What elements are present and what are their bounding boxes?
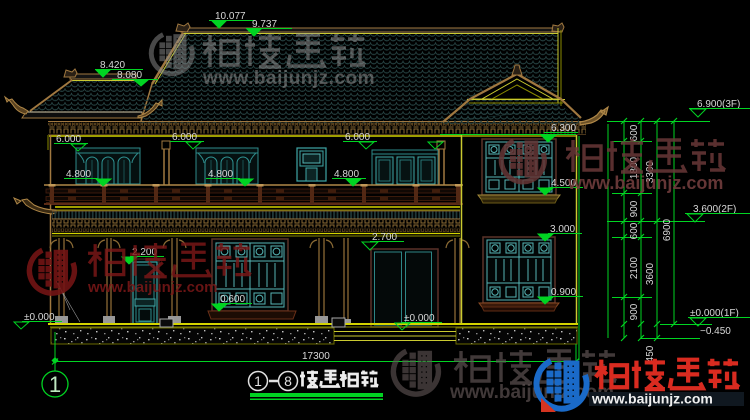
svg-text:−0.450: −0.450 <box>700 326 731 337</box>
svg-text:8: 8 <box>284 373 292 389</box>
svg-text:900: 900 <box>629 303 640 320</box>
svg-text:2100: 2100 <box>629 256 640 279</box>
svg-text:1: 1 <box>254 373 262 389</box>
svg-text:www.baijunjz.com: www.baijunjz.com <box>567 173 723 193</box>
svg-text:6900: 6900 <box>662 218 673 241</box>
svg-text:www.baijunjz.com: www.baijunjz.com <box>591 391 713 407</box>
svg-text:www.baijunjz.com: www.baijunjz.com <box>87 279 217 296</box>
svg-text:3600: 3600 <box>645 262 656 285</box>
svg-text:900: 900 <box>629 200 640 217</box>
svg-text:17300: 17300 <box>302 351 330 362</box>
svg-text:1: 1 <box>49 372 61 397</box>
svg-text:600: 600 <box>629 124 640 141</box>
svg-text:www.baijunjz.com: www.baijunjz.com <box>202 68 375 89</box>
svg-text:600: 600 <box>629 222 640 239</box>
